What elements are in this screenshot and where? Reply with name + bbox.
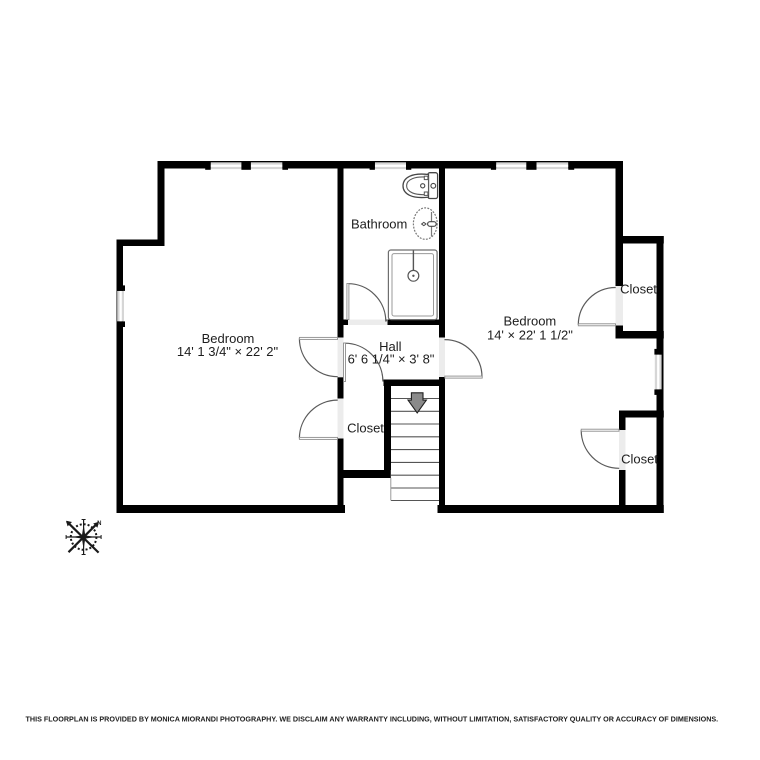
svg-text:Closet: Closet [620,282,657,297]
svg-text:N: N [97,521,101,527]
svg-text:Closet: Closet [621,452,658,467]
svg-text:Bedroom: Bedroom [504,314,557,329]
svg-text:Closet: Closet [347,421,384,436]
svg-text:Bathroom: Bathroom [351,217,407,232]
svg-text:6' 6 1/4" × 3' 8": 6' 6 1/4" × 3' 8" [348,351,435,366]
svg-text:14' × 22' 1 1/2": 14' × 22' 1 1/2" [487,328,573,343]
svg-text:14' 1 3/4" × 22' 2": 14' 1 3/4" × 22' 2" [177,344,279,359]
svg-text:THIS FLOORPLAN IS PROVIDED BY: THIS FLOORPLAN IS PROVIDED BY MONICA MIO… [26,714,719,723]
